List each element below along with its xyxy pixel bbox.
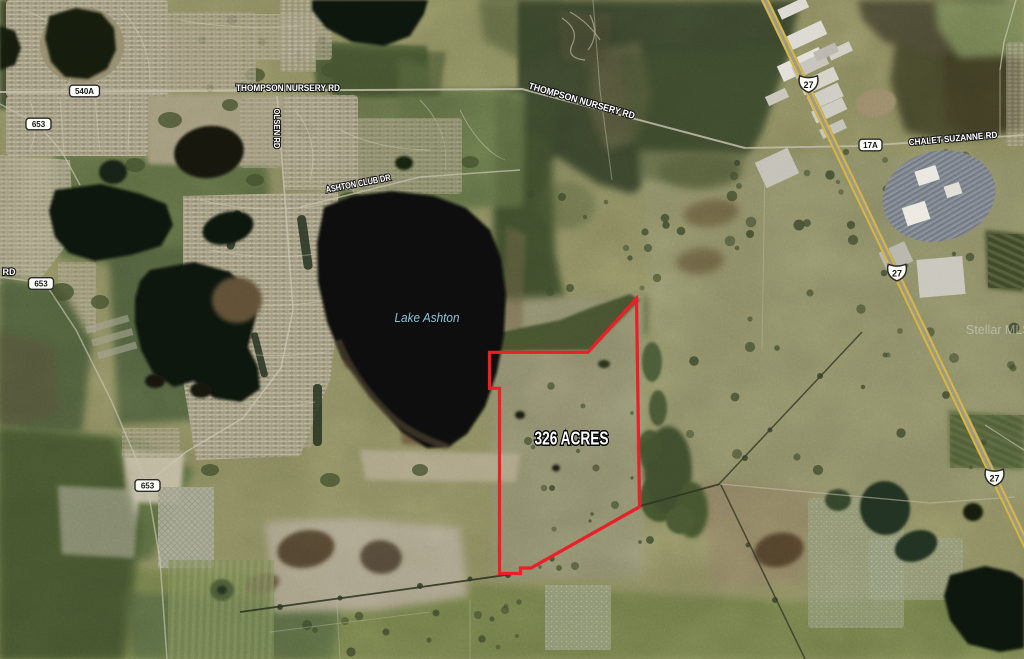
- svg-text:OLSEN RD: OLSEN RD: [272, 109, 282, 149]
- svg-text:RD: RD: [3, 267, 16, 277]
- svg-text:THOMPSON NURSERY RD: THOMPSON NURSERY RD: [236, 83, 340, 94]
- svg-text:Stellar MLS: Stellar MLS: [966, 323, 1024, 337]
- svg-text:Lake Ashton: Lake Ashton: [395, 310, 460, 325]
- svg-text:653: 653: [141, 482, 155, 491]
- svg-text:17A: 17A: [863, 141, 878, 150]
- svg-text:653: 653: [34, 280, 48, 289]
- svg-text:27: 27: [803, 80, 813, 90]
- svg-text:27: 27: [989, 474, 999, 484]
- svg-text:540A: 540A: [75, 87, 94, 96]
- svg-text:27: 27: [892, 269, 902, 279]
- svg-text:653: 653: [32, 120, 46, 129]
